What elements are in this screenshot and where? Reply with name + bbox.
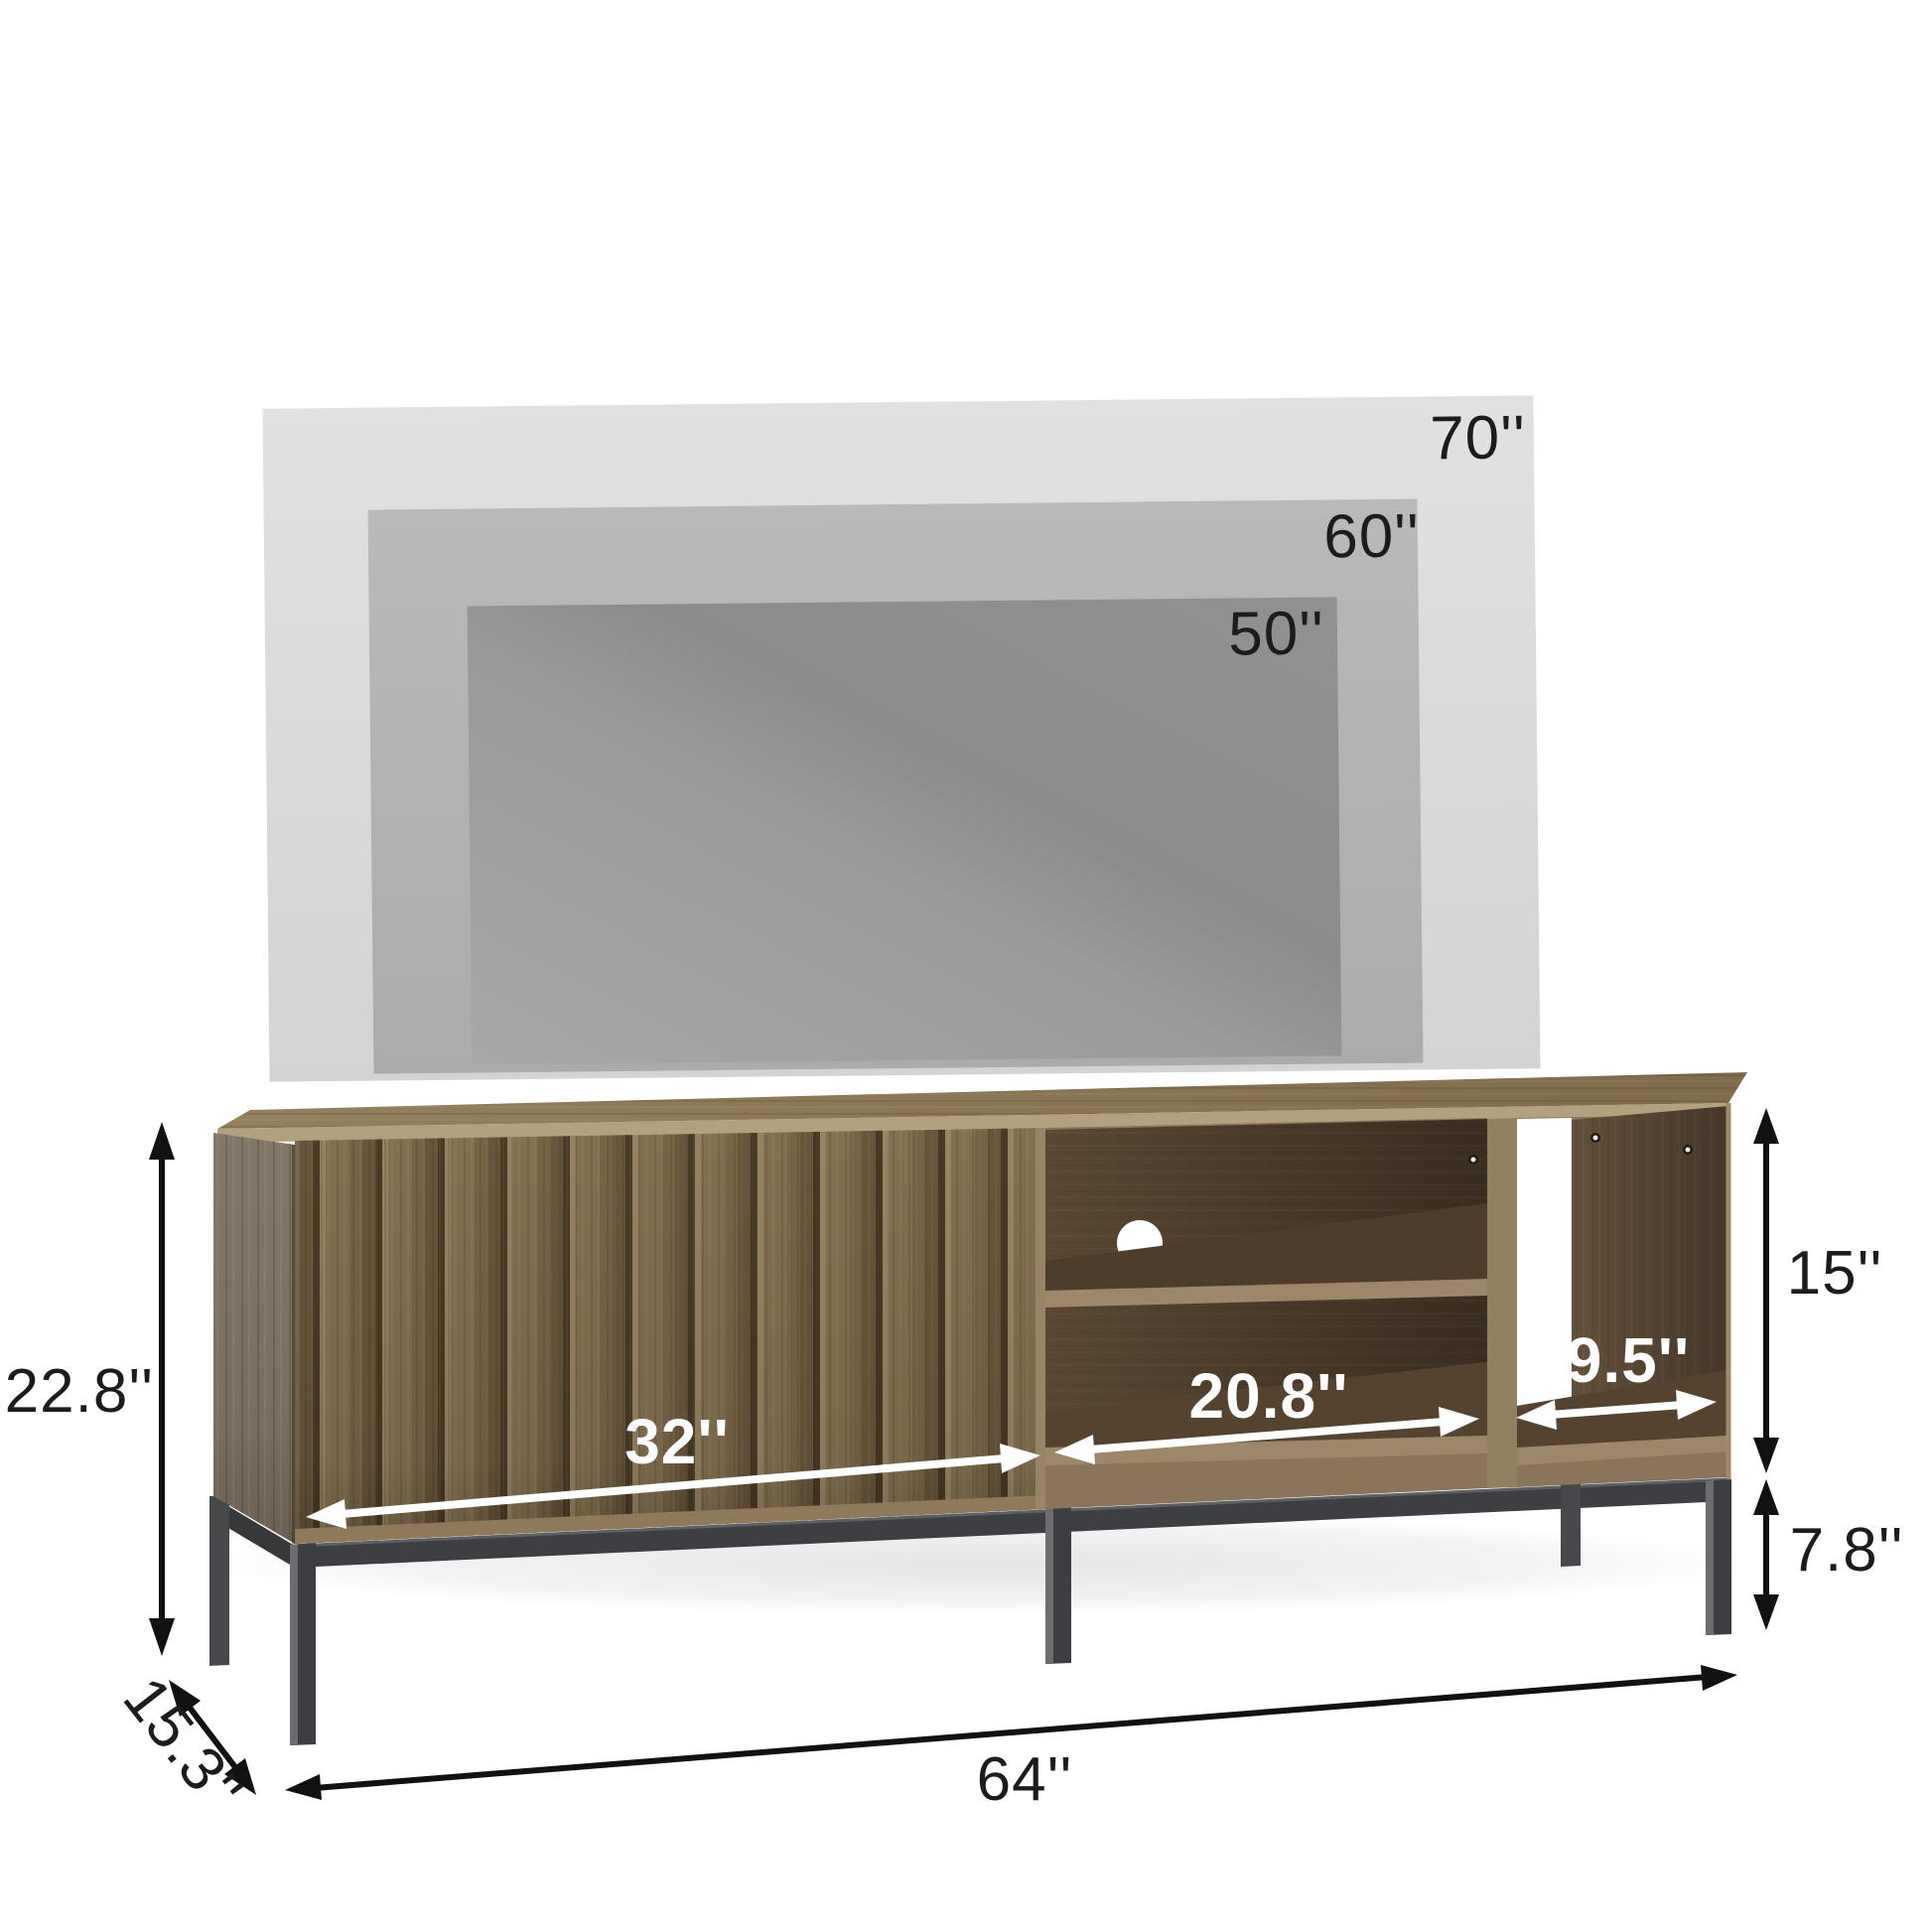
right-cubby-section [1517,1106,1728,1487]
leg-front-right [1706,1479,1731,1635]
overall-height-label: 22.8'' [5,1357,154,1426]
tv-60-label: 60'' [1323,502,1420,572]
cabinet-group [213,1072,1747,1544]
overall-width-label: 64'' [977,1745,1073,1814]
leg-height-label: 7.8'' [1790,1516,1904,1585]
cabinet-left-panel-grain [213,1133,295,1544]
tv-50-outline [468,597,1342,1064]
leg-back-left [209,1495,229,1666]
tv-stand-dimension-diagram: 70'' 60'' 50'' [0,0,1932,1932]
tv-size-overlay-group: 70'' 60'' 50'' [262,395,1540,1081]
middle-width-label: 20.8'' [1189,1360,1349,1432]
tv-70-label: 70'' [1430,403,1526,473]
upper-height-dimension-arrow [1753,1108,1779,1473]
door-width-label: 32'' [624,1406,730,1477]
tv-50-label: 50'' [1228,600,1324,669]
leg-back-right [1561,1478,1581,1567]
cubby-width-label: 9.5'' [1567,1324,1690,1396]
leg-front-left [290,1543,316,1745]
screw-hole-center [1471,1158,1476,1163]
divider-panel-edge [1487,1118,1517,1488]
screw-hole-center [1593,1136,1598,1141]
cubby-open-back-gap [1517,1118,1572,1406]
diagram-svg: 70'' 60'' 50'' [0,0,1932,1932]
door-right-edge [1035,1128,1045,1509]
upper-height-label: 15'' [1787,1239,1883,1308]
leg-height-dimension-arrow [1753,1479,1779,1630]
screw-hole-center [1686,1148,1691,1153]
depth-label: 15.3'' [110,1665,256,1825]
leg-front-middle [1045,1507,1071,1664]
cabinet-door [295,1128,1045,1544]
